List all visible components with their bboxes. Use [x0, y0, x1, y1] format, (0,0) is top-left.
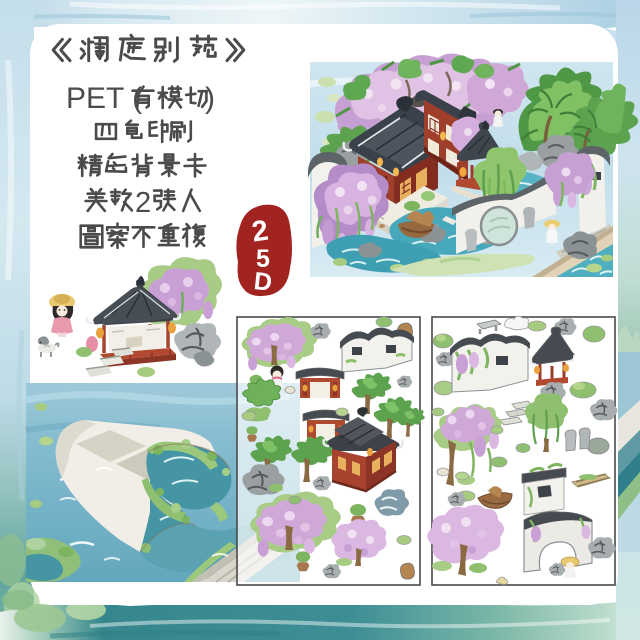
svg-text:D: D: [252, 267, 273, 297]
svg-text:): ): [205, 82, 215, 115]
svg-text:PET (: PET (: [66, 82, 142, 115]
svg-text:2: 2: [135, 187, 151, 219]
